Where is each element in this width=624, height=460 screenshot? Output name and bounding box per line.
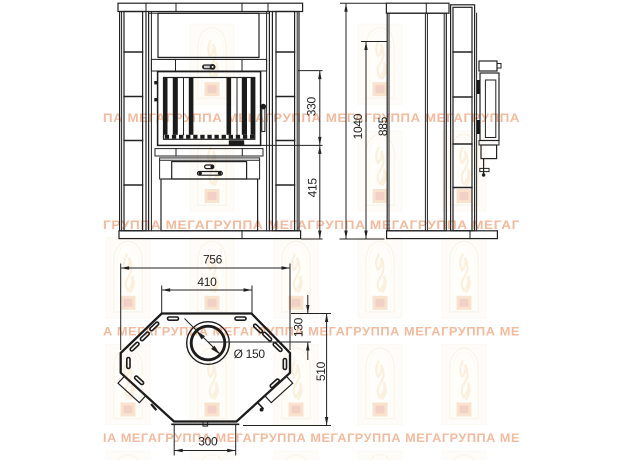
svg-text:756: 756 xyxy=(203,253,223,267)
svg-text:510: 510 xyxy=(314,361,328,381)
svg-text:415: 415 xyxy=(305,178,319,198)
svg-text:ГРУППА МЕГАГРУППА МЕГАГРУППА М: ГРУППА МЕГАГРУППА МЕГАГРУППА МЕГАГРУППА … xyxy=(103,220,520,232)
svg-text:410: 410 xyxy=(197,275,217,289)
svg-text:ІА МЕГАГРУППА МЕГАГРУППА МЕГАГ: ІА МЕГАГРУППА МЕГАГРУППА МЕГАГРУППА МЕГА… xyxy=(103,433,520,445)
svg-text:А МЕГАГРУППА МЕГАГРУППА МЕГАГР: А МЕГАГРУППА МЕГАГРУППА МЕГАГРУППА МЕГАГ… xyxy=(103,327,520,339)
svg-text:130: 130 xyxy=(291,317,305,337)
svg-text:Ø 150: Ø 150 xyxy=(234,347,266,361)
svg-text:1040: 1040 xyxy=(351,113,365,139)
svg-text:300: 300 xyxy=(198,435,218,449)
svg-text:885: 885 xyxy=(376,116,390,136)
svg-text:330: 330 xyxy=(305,97,319,117)
